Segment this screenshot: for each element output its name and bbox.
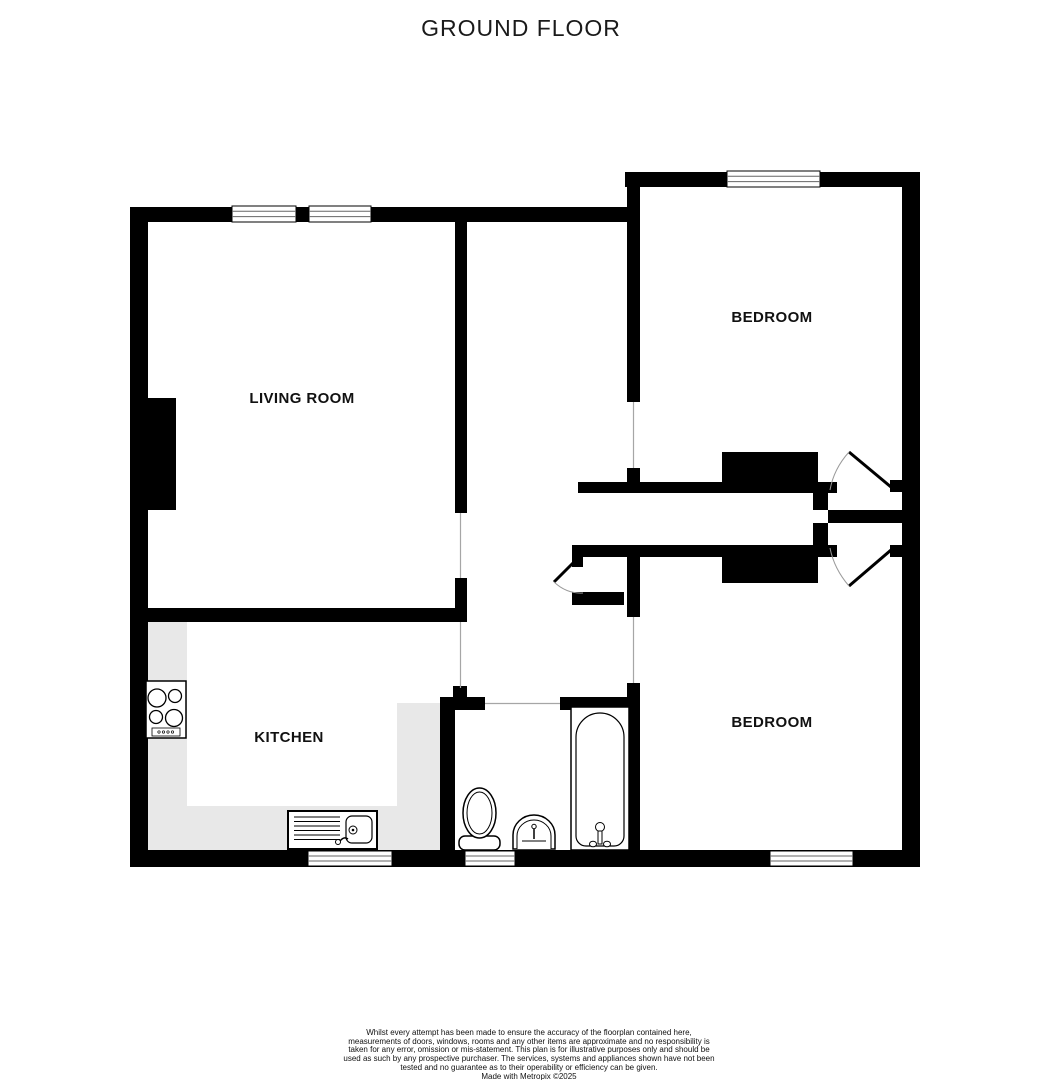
floorplan-canvas: GROUND FLOOR	[0, 0, 1049, 1080]
living-room-label: LIVING ROOM	[249, 390, 354, 407]
corridor-right-mid-wall	[828, 510, 903, 523]
corridor-bottom-wall	[572, 545, 837, 557]
chimney-breast	[144, 398, 176, 510]
hob	[146, 681, 186, 738]
bedroom-top-label: BEDROOM	[731, 309, 812, 326]
disclaimer-text: Whilst every attempt has been made to en…	[343, 1029, 715, 1073]
kitchen-sink	[288, 811, 377, 849]
bedroom-top-left-wall	[627, 172, 640, 402]
window-bathroom	[465, 851, 515, 866]
window-bedroom-top	[727, 171, 820, 187]
walls	[130, 172, 920, 867]
footer: Whilst every attempt has been made to en…	[343, 1029, 715, 1080]
living-room-right-wall	[455, 222, 467, 513]
living-room-bottom-wall	[130, 608, 467, 622]
outer-wall-right	[902, 172, 920, 867]
bathroom-left-wall	[440, 697, 455, 852]
window-bedroom-bottom	[770, 851, 853, 866]
window-kitchen	[308, 851, 392, 866]
metropix-credit: Made with Metropix ©2025	[343, 1073, 715, 1080]
page-title: GROUND FLOOR	[421, 15, 621, 41]
inner-hall-right-wall	[627, 545, 640, 617]
bedroom-bottom-label: BEDROOM	[731, 714, 812, 731]
floorplan-page: GROUND FLOOR	[0, 0, 1049, 1080]
basin	[513, 815, 555, 849]
wardrobe-bedroom-top	[722, 452, 818, 482]
wardrobe-bedroom-bottom	[722, 557, 818, 583]
corridor-right-stub-upper	[813, 493, 828, 510]
inner-hall-lower-wall	[572, 592, 624, 605]
outer-wall-left	[130, 207, 148, 867]
toilet	[459, 788, 500, 850]
bathtub	[571, 707, 629, 850]
window-living-2	[309, 206, 371, 222]
corridor-top-wall	[578, 482, 837, 493]
bedroom-top-left-wall-stub	[627, 468, 640, 482]
door-bedroom-top	[830, 452, 903, 492]
hob-knobs	[152, 728, 180, 736]
door-bedroom-bottom	[830, 545, 903, 586]
corridor-right-stub-lower	[813, 523, 828, 545]
outer-wall-top-living	[130, 207, 640, 222]
kitchen-label: KITCHEN	[254, 729, 323, 746]
window-living-1	[232, 206, 296, 222]
bathroom-top-wall-left	[440, 697, 485, 710]
